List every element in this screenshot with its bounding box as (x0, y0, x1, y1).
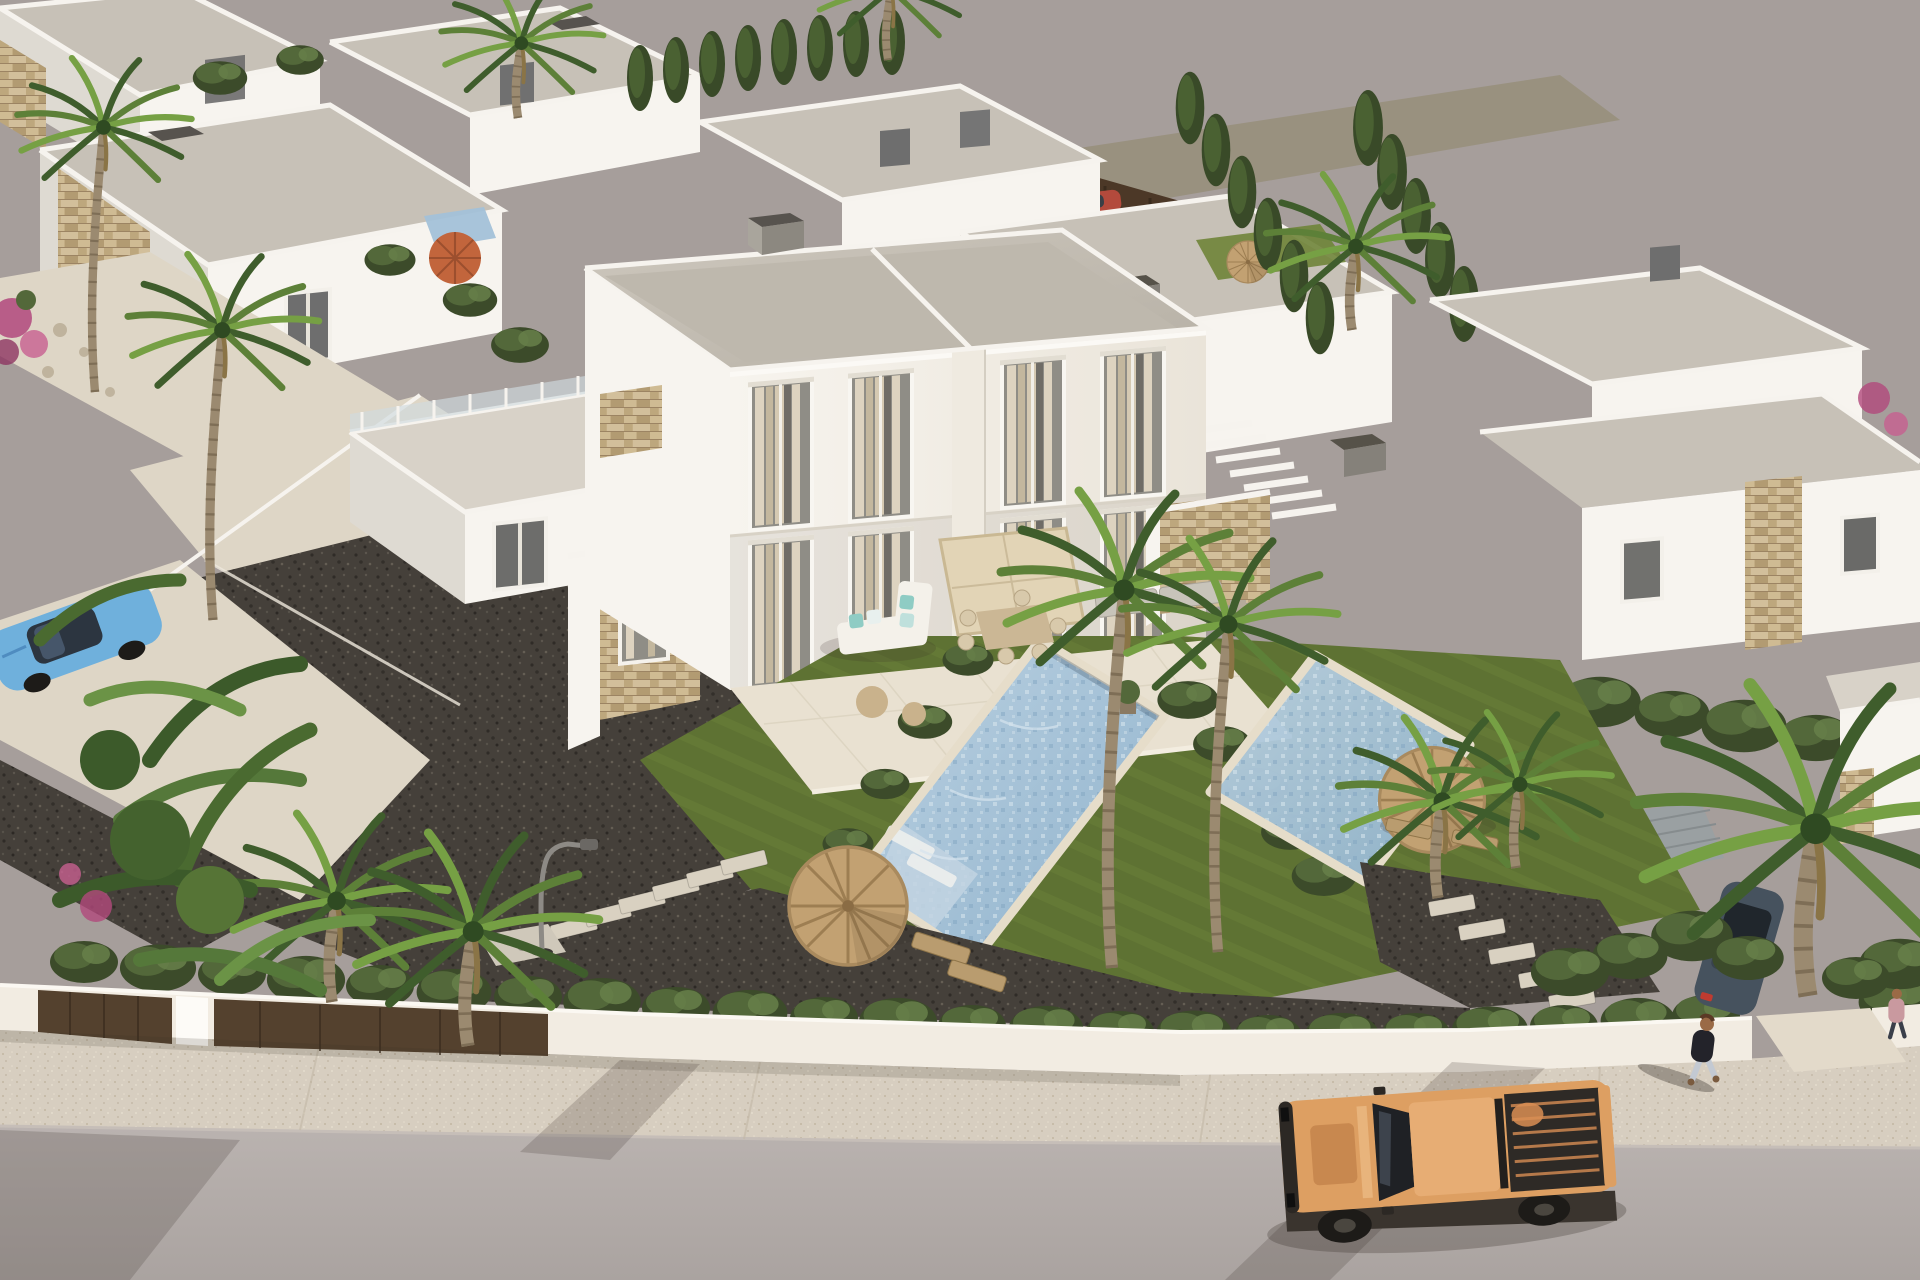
thatch-umbrella-left (789, 847, 907, 965)
truck-bed (1504, 1085, 1617, 1194)
road (0, 1126, 1920, 1280)
chimney (748, 213, 804, 255)
orange-umbrella (429, 232, 481, 284)
render-scene (0, 0, 1920, 1280)
